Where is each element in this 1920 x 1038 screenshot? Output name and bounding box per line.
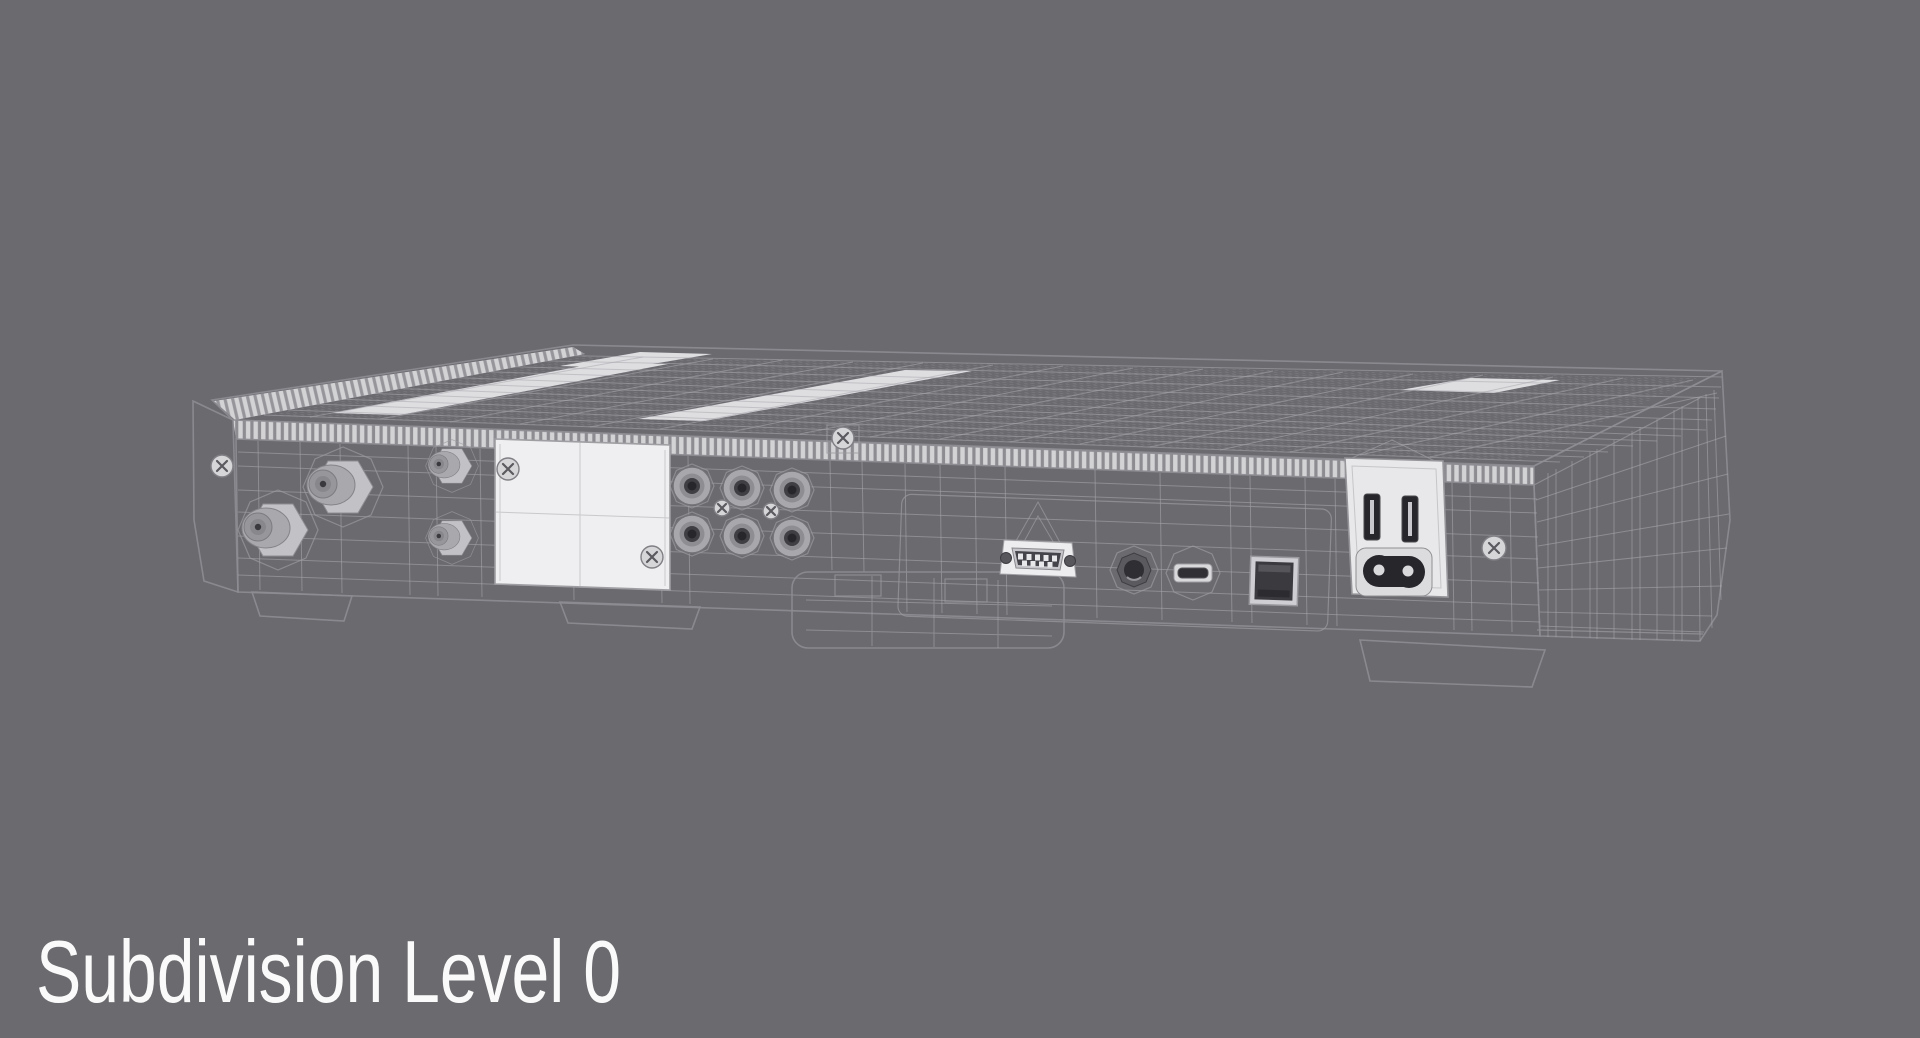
rca-jack-6 xyxy=(770,516,814,560)
audio-jack-3-5mm xyxy=(1110,546,1158,594)
c7-power-inlet xyxy=(1356,548,1432,596)
render-viewport: Subdivision Level 0 xyxy=(0,0,1920,1038)
power-inlet-assembly xyxy=(1345,458,1448,597)
rca-jack-5 xyxy=(720,514,764,558)
db9-serial-port xyxy=(1000,540,1076,577)
blank-cover-plate xyxy=(495,439,670,590)
rca-jack-1 xyxy=(670,464,714,508)
rca-jack-4 xyxy=(670,512,714,556)
optical-audio-port xyxy=(1249,556,1298,605)
caption: Subdivision Level 0 xyxy=(36,922,621,1021)
